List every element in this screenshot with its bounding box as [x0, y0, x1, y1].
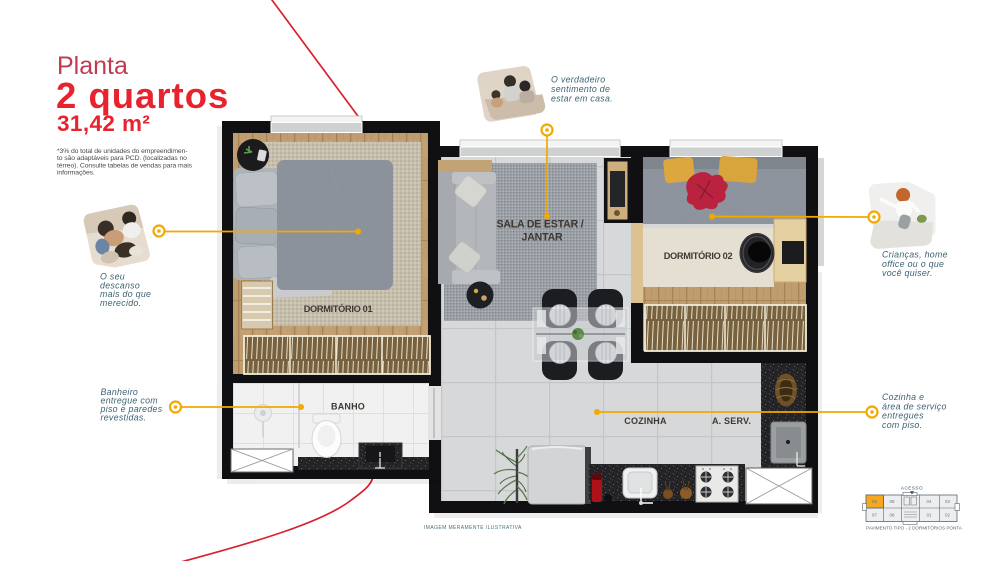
svg-text:DORMITÓRIO 02: DORMITÓRIO 02	[664, 250, 733, 261]
svg-text:informações.: informações.	[57, 170, 95, 177]
svg-text:04: 04	[927, 499, 932, 504]
svg-text:06: 06	[872, 499, 877, 504]
svg-text:31,42 m²: 31,42 m²	[57, 111, 150, 136]
svg-text:SALA DE ESTAR /: SALA DE ESTAR /	[496, 219, 583, 231]
svg-text:08: 08	[890, 513, 895, 518]
svg-text:02: 02	[945, 513, 950, 518]
svg-text:*3% do total de unidades do em: *3% do total de unidades do empreendimen…	[57, 148, 187, 155]
svg-text:to são adaptáveis para PCD. (l: to são adaptáveis para PCD. (localizadas…	[57, 155, 187, 162]
svg-text:COZINHA: COZINHA	[624, 416, 667, 426]
svg-text:A. SERV.: A. SERV.	[712, 416, 751, 426]
svg-text:01: 01	[927, 513, 932, 518]
svg-text:05: 05	[890, 499, 895, 504]
svg-text:térreo). Consulte tabelas de v: térreo). Consulte tabelas de vendas para…	[57, 162, 193, 169]
svg-text:07: 07	[872, 513, 877, 518]
svg-text:com piso.: com piso.	[882, 420, 922, 430]
svg-text:você quiser.: você quiser.	[882, 268, 933, 278]
svg-text:BANHO: BANHO	[331, 402, 365, 412]
svg-text:merecido.: merecido.	[100, 298, 141, 308]
svg-text:ACESSO: ACESSO	[901, 486, 923, 491]
svg-text:revestidas.: revestidas.	[101, 413, 147, 423]
svg-text:IMAGEM MERAMENTE ILUSTRATIVA: IMAGEM MERAMENTE ILUSTRATIVA	[424, 525, 522, 531]
svg-text:DORMITÓRIO 01: DORMITÓRIO 01	[304, 303, 373, 314]
svg-text:sentimento de: sentimento de	[551, 84, 610, 94]
svg-text:O verdadeiro: O verdadeiro	[551, 75, 605, 85]
svg-text:2 quartos: 2 quartos	[56, 75, 229, 116]
svg-text:03: 03	[945, 499, 950, 504]
svg-text:JANTAR: JANTAR	[522, 232, 564, 244]
svg-text:PAVIMENTO TIPO - 2 DORMITÓRIOS: PAVIMENTO TIPO - 2 DORMITÓRIOS PONTA	[866, 525, 963, 531]
svg-text:estar em casa.: estar em casa.	[551, 94, 613, 104]
